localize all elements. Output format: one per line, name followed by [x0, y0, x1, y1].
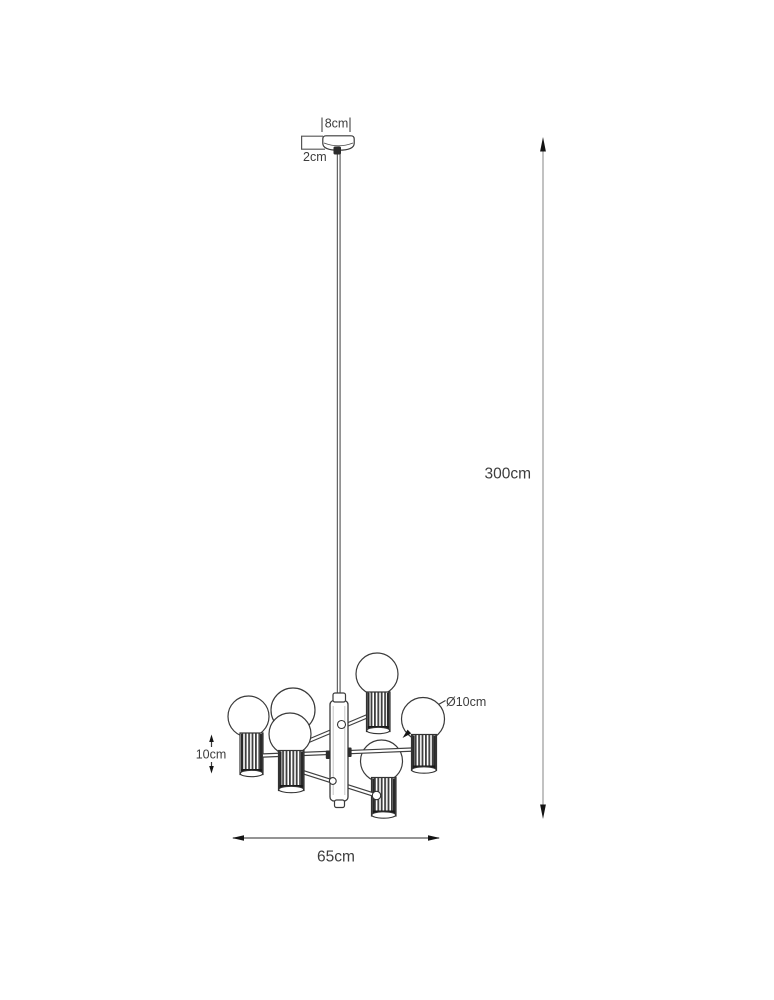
dimension-canopy-width: 8cm — [322, 117, 350, 133]
arrow-up-icon — [540, 137, 546, 152]
cable-gland — [334, 147, 342, 155]
bulb-socket — [367, 692, 391, 734]
dimension-fixture-width: 65cm — [232, 835, 440, 865]
ball-joint-left — [329, 778, 336, 785]
fixture-width-label: 65cm — [317, 849, 355, 866]
arrow-left-icon — [232, 835, 244, 841]
bulb-globe — [361, 740, 403, 782]
bulb-far-left — [228, 696, 269, 777]
central-tube — [330, 693, 348, 808]
chandelier — [228, 653, 445, 818]
bulb-globe — [269, 713, 311, 755]
lamp-dimension-diagram: 300cm 8cm 2cm — [0, 0, 774, 1000]
ball-joint-upper — [338, 721, 346, 729]
arrow-up-icon — [209, 735, 214, 743]
arrow-down-icon — [540, 805, 546, 820]
leader-line — [439, 701, 446, 705]
canopy-width-label: 8cm — [325, 117, 349, 131]
socket-height-label: 10cm — [196, 748, 227, 762]
tube-bottom-nub — [335, 800, 345, 808]
arm-fitting-right — [348, 748, 352, 758]
bulb-socket — [240, 733, 263, 777]
arrow-down-icon — [209, 766, 214, 774]
bulb-socket — [279, 751, 305, 793]
bulb-globe — [356, 653, 398, 695]
bulb-top — [356, 653, 398, 734]
bulb-socket — [412, 735, 437, 774]
bulb-right — [402, 698, 445, 774]
ceiling-canopy — [323, 136, 354, 155]
tube-top-collar — [333, 693, 346, 702]
canopy-height-label: 2cm — [303, 150, 327, 164]
globe-diameter-label: Ø10cm — [446, 695, 486, 709]
ball-joint-lower — [372, 791, 380, 799]
arrow-right-icon — [428, 835, 440, 841]
diagram-canvas: 300cm 8cm 2cm — [0, 0, 774, 1000]
dimension-socket-height: 10cm — [196, 735, 227, 774]
dimension-suspension-height: 300cm — [484, 137, 545, 819]
arm-fitting-left — [326, 751, 330, 760]
suspension-height-label: 300cm — [484, 466, 531, 483]
bulb-globe — [228, 696, 269, 737]
